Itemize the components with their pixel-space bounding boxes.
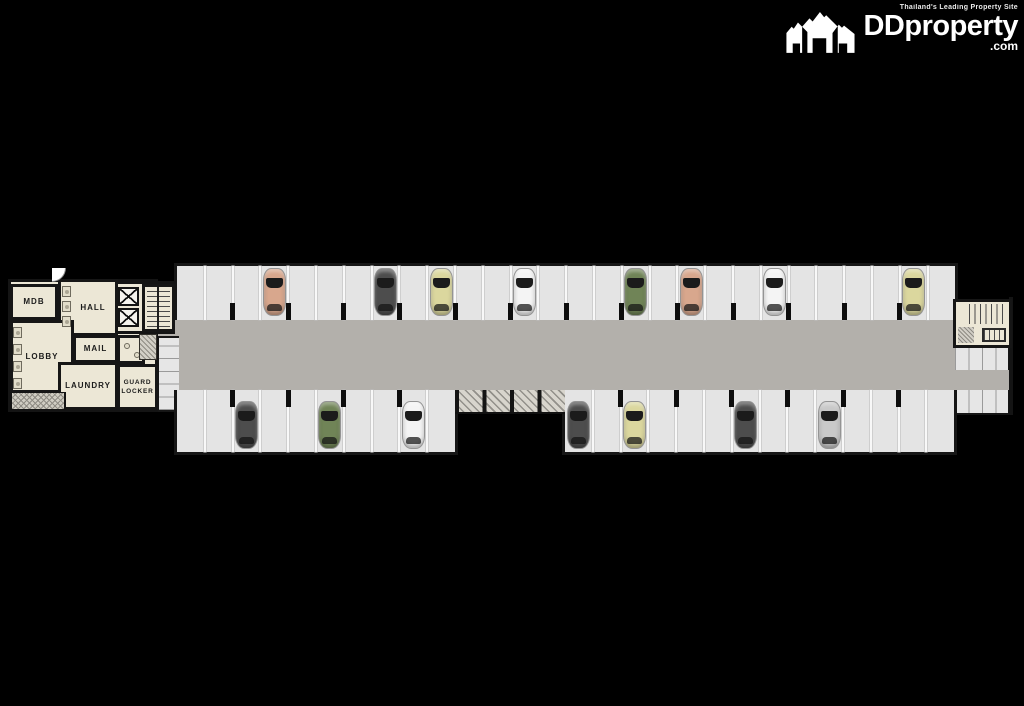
- page-background: Thailand's Leading Property Site DDprope…: [0, 0, 1024, 706]
- column-mark: [842, 303, 847, 320]
- hatched-no-parking-zone: [455, 390, 565, 414]
- furniture: [62, 286, 71, 297]
- stall-divider: [870, 390, 872, 452]
- column-mark: [508, 303, 513, 320]
- column-mark: [230, 390, 235, 407]
- parked-car-pale-yellow: [903, 269, 924, 315]
- column-mark: [786, 303, 791, 320]
- parking-row-bottom-right: [562, 390, 957, 455]
- stall-divider: [647, 390, 649, 452]
- elevator-icon: [118, 308, 139, 327]
- stall-divider: [704, 266, 706, 320]
- furniture: [62, 316, 71, 327]
- stall-divider: [426, 266, 428, 320]
- furniture: [13, 378, 22, 389]
- parked-car-salmon: [681, 269, 702, 315]
- stall-divider: [649, 266, 651, 320]
- room-label-guard-locker: GUARD LOCKER: [121, 378, 155, 396]
- stall-divider: [814, 390, 816, 452]
- column-mark: [675, 303, 680, 320]
- parked-car-green: [319, 402, 340, 448]
- stall-divider: [703, 390, 705, 452]
- driveway: [157, 320, 1013, 390]
- column-mark: [897, 303, 902, 320]
- parked-car-white: [764, 269, 785, 315]
- stair-flight: [982, 328, 1006, 342]
- parked-car-silver: [819, 402, 840, 448]
- stair-hatch-corner: [958, 327, 974, 343]
- parked-car-pale-yellow: [431, 269, 452, 315]
- parked-car-white: [514, 269, 535, 315]
- column-mark: [731, 303, 736, 320]
- stall-divider: [760, 266, 762, 320]
- stair-divider: [157, 287, 159, 329]
- room-guard-locker: GUARD LOCKER: [117, 364, 158, 410]
- toilet-icon: [124, 343, 130, 349]
- stairwell-left: [142, 284, 175, 332]
- stall-divider: [593, 266, 595, 320]
- column-mark: [397, 303, 402, 320]
- column-mark: [230, 303, 235, 320]
- room-label-laundry: LAUNDRY: [65, 380, 111, 391]
- stall-divider: [259, 390, 261, 452]
- parked-car-white: [403, 402, 424, 448]
- stall-divider: [537, 266, 539, 320]
- parking-row-top: [174, 263, 958, 320]
- parked-car-green: [625, 269, 646, 315]
- column-mark: [341, 390, 346, 407]
- room-label-hall: HALL: [70, 302, 105, 313]
- stall-divider: [759, 390, 761, 452]
- hatch-square: [139, 334, 157, 360]
- room-laundry: LAUNDRY: [58, 362, 118, 410]
- stall-divider: [259, 266, 261, 320]
- parked-car-dark-gray: [375, 269, 396, 315]
- room-label-mdb: MDB: [23, 296, 44, 307]
- stall-divider: [925, 390, 927, 452]
- parked-car-pale-yellow: [624, 402, 645, 448]
- stairwell-right: [953, 299, 1012, 348]
- column-mark: [729, 390, 734, 407]
- parked-car-salmon: [264, 269, 285, 315]
- column-mark: [619, 303, 624, 320]
- furniture: [13, 361, 22, 372]
- column-mark: [286, 390, 291, 407]
- column-mark: [286, 303, 291, 320]
- stall-divider: [592, 390, 594, 452]
- room-label-lobby: LOBBY: [26, 351, 59, 362]
- small-stalls-right-top: [955, 348, 1010, 370]
- entry-mat-crosshatch: [10, 392, 66, 411]
- column-mark: [618, 390, 623, 407]
- column-mark: [397, 390, 402, 407]
- stall-divider: [371, 390, 373, 452]
- room-mail: MAIL: [73, 335, 118, 363]
- parked-car-dark-gray: [568, 402, 589, 448]
- stall-divider: [927, 266, 929, 320]
- furniture: [62, 301, 71, 312]
- column-mark: [341, 303, 346, 320]
- furniture: [13, 344, 22, 355]
- stall-divider: [871, 266, 873, 320]
- column-mark: [785, 390, 790, 407]
- stall-divider: [426, 390, 428, 452]
- column-mark: [564, 303, 569, 320]
- small-stalls-right-bottom: [955, 390, 1010, 415]
- stall-divider: [315, 390, 317, 452]
- column-mark: [841, 390, 846, 407]
- stall-divider: [815, 266, 817, 320]
- column-mark: [896, 390, 901, 407]
- stall-divider: [315, 266, 317, 320]
- parked-car-dark-gray: [735, 402, 756, 448]
- stair-treads: [969, 304, 1007, 324]
- stall-divider: [204, 390, 206, 452]
- floor-plan: MDB HALL LOBBY MAIL LAUNDRY GUARD LOCKER: [0, 0, 1024, 706]
- parked-car-dark-gray: [236, 402, 257, 448]
- stall-divider: [204, 266, 206, 320]
- column-mark: [453, 303, 458, 320]
- room-label-mail: MAIL: [84, 343, 108, 354]
- furniture: [13, 327, 22, 338]
- room-mdb: MDB: [10, 284, 58, 320]
- column-mark: [674, 390, 679, 407]
- elevator-icon: [118, 287, 139, 306]
- stall-divider: [371, 266, 373, 320]
- stall-divider: [482, 266, 484, 320]
